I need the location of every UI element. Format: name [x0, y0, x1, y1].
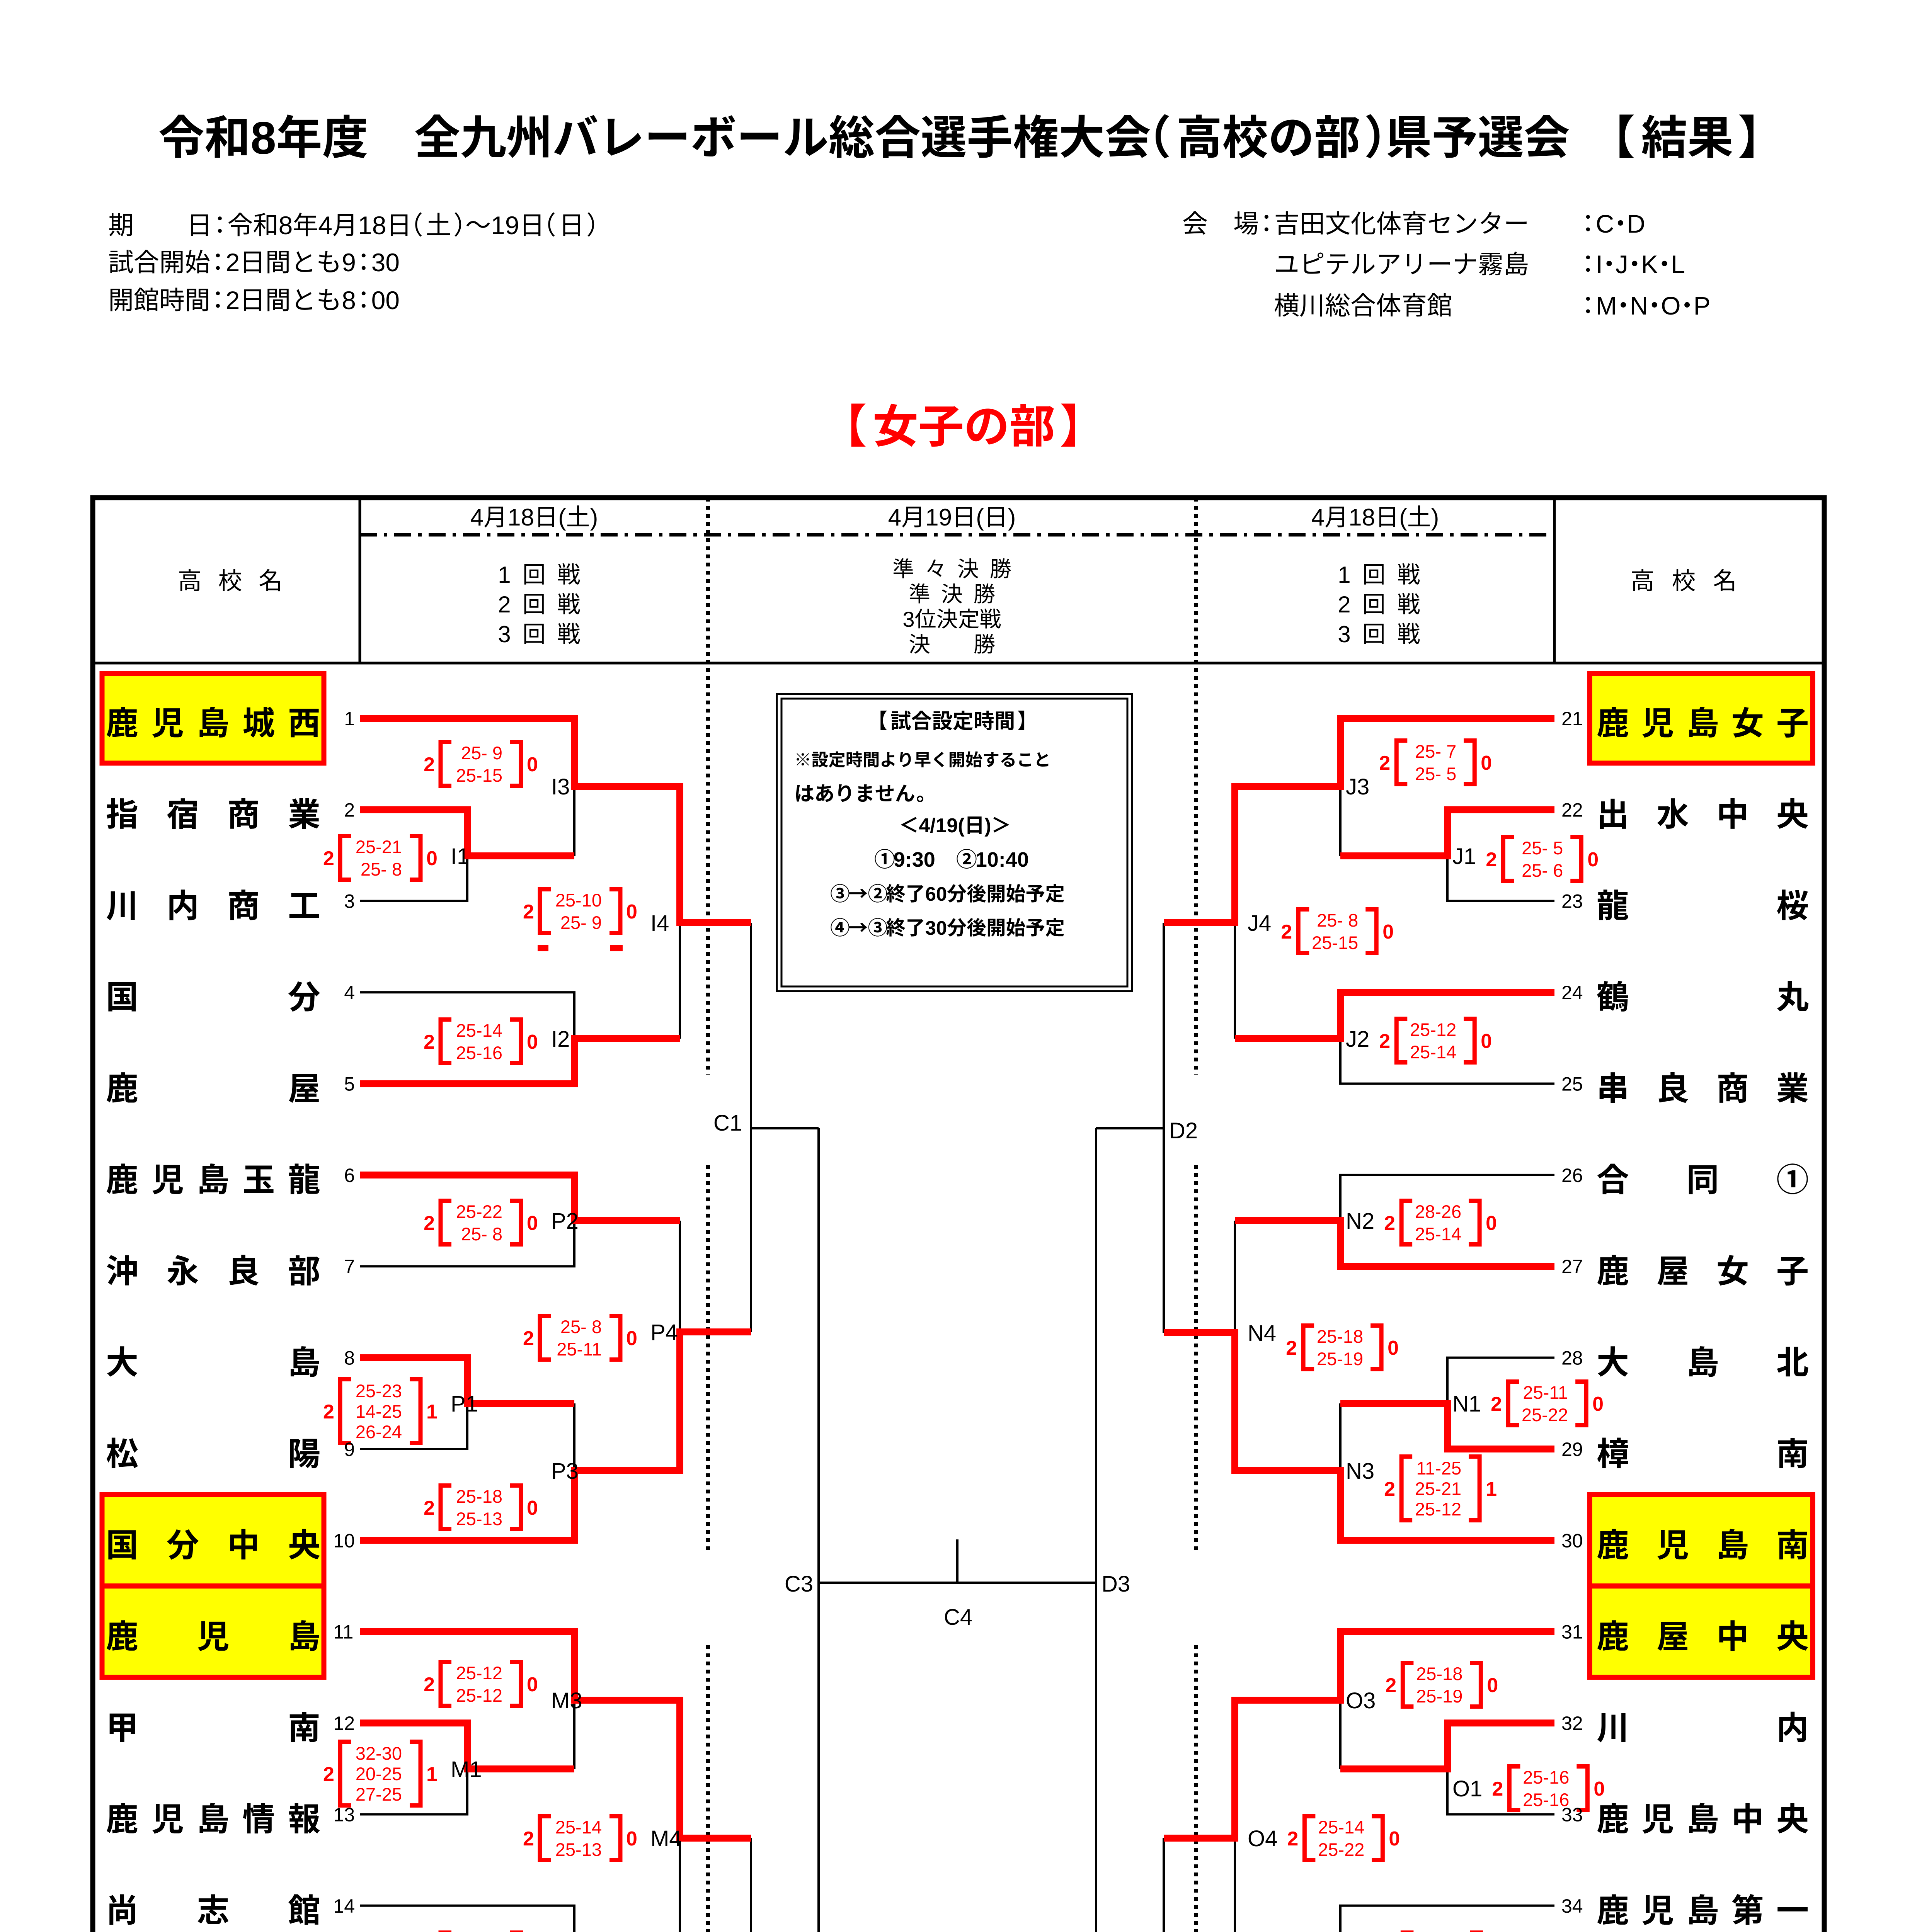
svg-text:(: ( [976, 504, 984, 531]
svg-text:3: 3 [344, 891, 355, 912]
svg-text:25- 8: 25- 8 [560, 1316, 602, 1337]
svg-text:C: C [1596, 209, 1614, 238]
svg-text:4: 4 [888, 504, 901, 531]
svg-text:2: 2 [424, 1673, 435, 1696]
svg-text:J2: J2 [1346, 1027, 1369, 1052]
svg-text:11: 11 [333, 1621, 353, 1643]
svg-text:25-11: 25-11 [1523, 1382, 1568, 1403]
svg-text:25- 7: 25- 7 [1415, 741, 1456, 762]
svg-text:25-14: 25-14 [1410, 1042, 1456, 1062]
svg-text:25- 6: 25- 6 [1522, 860, 1563, 881]
svg-text:25-16: 25-16 [456, 1043, 502, 1063]
svg-text:2: 2 [424, 1212, 435, 1235]
svg-text:32-30: 32-30 [356, 1743, 402, 1764]
svg-text:25-10: 25-10 [555, 890, 602, 910]
svg-text:0: 0 [1481, 752, 1492, 774]
svg-text:I3: I3 [551, 774, 570, 799]
svg-text:25-11: 25-11 [557, 1339, 602, 1359]
svg-text:25- 8: 25- 8 [461, 1224, 502, 1244]
svg-text:21: 21 [1561, 708, 1583, 730]
svg-text:1: 1 [1486, 1478, 1497, 1500]
svg-text:25-13: 25-13 [555, 1839, 602, 1860]
svg-text:C3: C3 [785, 1571, 813, 1597]
svg-text:D2: D2 [1169, 1118, 1198, 1143]
svg-text:30: 30 [925, 917, 947, 939]
svg-text:0: 0 [626, 1327, 637, 1350]
svg-text:25-14: 25-14 [1415, 1224, 1461, 1244]
svg-text:6: 6 [344, 1165, 355, 1186]
svg-text:0: 0 [527, 1673, 538, 1696]
svg-text:25-16: 25-16 [1523, 1767, 1569, 1787]
svg-text:25-23: 25-23 [356, 1381, 402, 1401]
svg-text:25-12: 25-12 [1415, 1499, 1461, 1519]
svg-text:I2: I2 [551, 1027, 570, 1052]
svg-text:P3: P3 [551, 1459, 579, 1484]
svg-text:J3: J3 [1346, 774, 1369, 799]
svg-text:3: 3 [498, 621, 511, 647]
svg-text:2: 2 [323, 1763, 334, 1786]
svg-text:2: 2 [1379, 752, 1390, 774]
svg-text:2: 2 [1338, 592, 1350, 617]
svg-text:5: 5 [344, 1073, 355, 1095]
svg-text:33: 33 [1561, 1804, 1583, 1825]
svg-text:): ) [1431, 504, 1439, 531]
svg-text:25-15: 25-15 [456, 765, 502, 786]
svg-text:3: 3 [1338, 621, 1350, 647]
svg-text:2: 2 [1286, 1337, 1297, 1359]
svg-text:20-25: 20-25 [356, 1764, 402, 1784]
svg-text:25-13: 25-13 [456, 1509, 502, 1529]
svg-text:2: 2 [424, 1031, 435, 1053]
svg-text:0: 0 [426, 847, 438, 870]
svg-text:25- 9: 25- 9 [461, 743, 502, 763]
svg-text:M1: M1 [451, 1757, 482, 1782]
svg-text:25-14: 25-14 [456, 1020, 502, 1041]
svg-text:0: 0 [1389, 1828, 1400, 1850]
svg-text:0: 0 [1481, 1030, 1492, 1053]
svg-text:0: 0 [626, 901, 637, 923]
svg-text:I4: I4 [650, 911, 669, 936]
svg-text:M: M [1596, 291, 1617, 320]
svg-text:O3: O3 [1346, 1688, 1376, 1713]
svg-text:C1: C1 [713, 1111, 742, 1136]
svg-text:D3: D3 [1102, 1571, 1130, 1597]
svg-text:P2: P2 [551, 1209, 579, 1234]
svg-text:25-15: 25-15 [1312, 932, 1358, 953]
svg-text:26-24: 26-24 [356, 1422, 402, 1442]
svg-text:N3: N3 [1346, 1459, 1374, 1484]
svg-text:0: 0 [527, 1031, 538, 1053]
svg-text:2: 2 [498, 592, 511, 617]
svg-text:18: 18 [1348, 504, 1375, 531]
svg-text:0: 0 [1382, 921, 1394, 943]
svg-text:): ) [984, 814, 991, 837]
svg-text:M3: M3 [551, 1688, 582, 1713]
svg-text:1: 1 [426, 1401, 438, 1423]
svg-text:11-25: 11-25 [1416, 1458, 1461, 1478]
svg-text:9: 9 [344, 1439, 355, 1460]
svg-text:23: 23 [1561, 891, 1583, 912]
svg-text:J4: J4 [1248, 911, 1271, 936]
svg-text:14-25: 14-25 [356, 1401, 402, 1422]
svg-text:18: 18 [358, 211, 386, 240]
svg-text:M4: M4 [650, 1826, 682, 1851]
svg-text:N: N [1630, 291, 1648, 320]
svg-text:8: 8 [250, 112, 276, 164]
svg-text:25-14: 25-14 [1318, 1817, 1364, 1837]
svg-text:25-22: 25-22 [1522, 1405, 1568, 1425]
svg-text:2: 2 [424, 753, 435, 776]
svg-text:I: I [1596, 250, 1603, 279]
svg-text:10: 10 [333, 1530, 355, 1551]
svg-text:25-19: 25-19 [1317, 1349, 1363, 1369]
svg-text:4: 4 [344, 982, 355, 1003]
svg-text:25-21: 25-21 [356, 837, 402, 857]
svg-text:8: 8 [342, 286, 356, 315]
svg-text:): ) [1008, 504, 1016, 531]
svg-text:1: 1 [1338, 562, 1350, 588]
svg-text:9: 9 [342, 248, 356, 277]
svg-text:13: 13 [333, 1804, 355, 1825]
svg-text:22: 22 [1561, 799, 1583, 821]
svg-text:4: 4 [470, 504, 484, 531]
svg-text:26: 26 [1561, 1165, 1583, 1186]
svg-text:25- 8: 25- 8 [1317, 910, 1358, 930]
svg-text:9:30: 9:30 [894, 848, 935, 871]
svg-text:0: 0 [1594, 1778, 1605, 1800]
svg-text:0: 0 [1388, 1337, 1399, 1359]
svg-text:I1: I1 [451, 844, 469, 869]
svg-text:0: 0 [1487, 1674, 1498, 1697]
svg-text:0: 0 [1486, 1212, 1497, 1235]
svg-text:1: 1 [498, 562, 511, 588]
svg-text:25-18: 25-18 [1317, 1326, 1363, 1347]
svg-text:30: 30 [371, 248, 400, 277]
svg-text:18: 18 [507, 504, 534, 531]
svg-text:2: 2 [1287, 1828, 1298, 1850]
svg-text:2: 2 [226, 286, 240, 315]
svg-text:N4: N4 [1248, 1321, 1276, 1346]
svg-text:34: 34 [1561, 1895, 1583, 1917]
svg-text:O: O [1661, 291, 1680, 320]
svg-text:25-22: 25-22 [1318, 1839, 1364, 1860]
svg-text:2: 2 [424, 1497, 435, 1519]
svg-text:P: P [1694, 291, 1711, 320]
svg-text:2: 2 [523, 1828, 534, 1850]
svg-text:25- 8: 25- 8 [361, 859, 402, 879]
svg-text:2: 2 [1491, 1393, 1502, 1415]
svg-text:31: 31 [1561, 1621, 1583, 1643]
svg-text:25-21: 25-21 [1415, 1478, 1461, 1499]
svg-text:27-25: 27-25 [356, 1784, 402, 1804]
svg-text:N2: N2 [1346, 1209, 1374, 1234]
svg-text:2: 2 [1384, 1478, 1395, 1500]
svg-text:25- 5: 25- 5 [1415, 764, 1456, 784]
svg-text:4: 4 [318, 211, 332, 240]
svg-text:19: 19 [491, 211, 519, 240]
svg-text:2: 2 [1379, 1030, 1390, 1053]
svg-text:2: 2 [1385, 1674, 1396, 1697]
svg-text:32: 32 [1561, 1713, 1583, 1734]
svg-text:2: 2 [523, 901, 534, 923]
svg-text:2: 2 [1384, 1212, 1395, 1235]
svg-text:25-14: 25-14 [555, 1817, 602, 1837]
svg-text:25-19: 25-19 [1416, 1686, 1462, 1706]
svg-text:4: 4 [1311, 504, 1325, 531]
svg-text:25- 5: 25- 5 [1522, 838, 1563, 858]
svg-text:D: D [1627, 209, 1645, 238]
svg-text:8: 8 [344, 1347, 355, 1369]
svg-text:14: 14 [333, 1895, 355, 1917]
svg-text:K: K [1641, 250, 1658, 279]
svg-text:25-12: 25-12 [1410, 1019, 1456, 1040]
svg-text:27: 27 [1561, 1256, 1583, 1277]
svg-text:28: 28 [1561, 1347, 1583, 1369]
svg-text:(: ( [558, 504, 566, 531]
svg-text:O1: O1 [1452, 1776, 1482, 1801]
svg-text:N1: N1 [1452, 1391, 1481, 1417]
svg-text:19: 19 [925, 504, 952, 531]
svg-text:2: 2 [523, 1327, 534, 1350]
svg-text:12: 12 [333, 1713, 355, 1734]
svg-text:2: 2 [1486, 849, 1497, 871]
svg-text:P4: P4 [650, 1320, 678, 1345]
svg-text:7: 7 [344, 1256, 355, 1277]
svg-text:28-26: 28-26 [1415, 1201, 1461, 1222]
svg-text:0: 0 [626, 1828, 637, 1850]
svg-text:2: 2 [344, 799, 355, 821]
svg-text:0: 0 [1587, 849, 1599, 871]
svg-text:1: 1 [344, 708, 355, 730]
svg-text:30: 30 [1561, 1530, 1583, 1551]
svg-text:0: 0 [527, 1497, 538, 1519]
svg-text:O4: O4 [1248, 1826, 1277, 1851]
svg-text:L: L [1671, 250, 1685, 279]
svg-text:0: 0 [527, 753, 538, 776]
svg-text:25-22: 25-22 [456, 1201, 502, 1222]
svg-text:24: 24 [1561, 982, 1583, 1003]
svg-text:0: 0 [1592, 1393, 1604, 1415]
svg-text:60: 60 [925, 883, 947, 905]
svg-text:2: 2 [226, 248, 240, 277]
svg-text:10:40: 10:40 [976, 848, 1029, 871]
svg-text:25-18: 25-18 [456, 1486, 502, 1507]
svg-text:J: J [1616, 250, 1628, 279]
svg-text:25-12: 25-12 [456, 1685, 502, 1706]
svg-text:25-12: 25-12 [456, 1663, 502, 1683]
svg-text:25- 9: 25- 9 [560, 912, 602, 933]
svg-text:(: ( [1399, 504, 1407, 531]
svg-text:1: 1 [426, 1763, 438, 1786]
svg-text:2: 2 [1281, 921, 1292, 943]
svg-text:3: 3 [902, 607, 914, 631]
svg-text:29: 29 [1561, 1439, 1583, 1460]
svg-text:00: 00 [371, 286, 400, 315]
svg-text:J1: J1 [1452, 844, 1476, 869]
svg-text:8: 8 [279, 211, 293, 240]
svg-text:4/19(: 4/19( [919, 814, 965, 837]
svg-text:C4: C4 [944, 1605, 972, 1630]
svg-text:25-18: 25-18 [1416, 1663, 1462, 1684]
svg-text:2: 2 [323, 847, 334, 870]
svg-text:P1: P1 [451, 1391, 478, 1417]
svg-text:2: 2 [1492, 1778, 1503, 1800]
svg-text:0: 0 [527, 1212, 538, 1235]
svg-text:25: 25 [1561, 1073, 1583, 1095]
svg-text:2: 2 [323, 1401, 334, 1423]
svg-text:): ) [590, 504, 598, 531]
